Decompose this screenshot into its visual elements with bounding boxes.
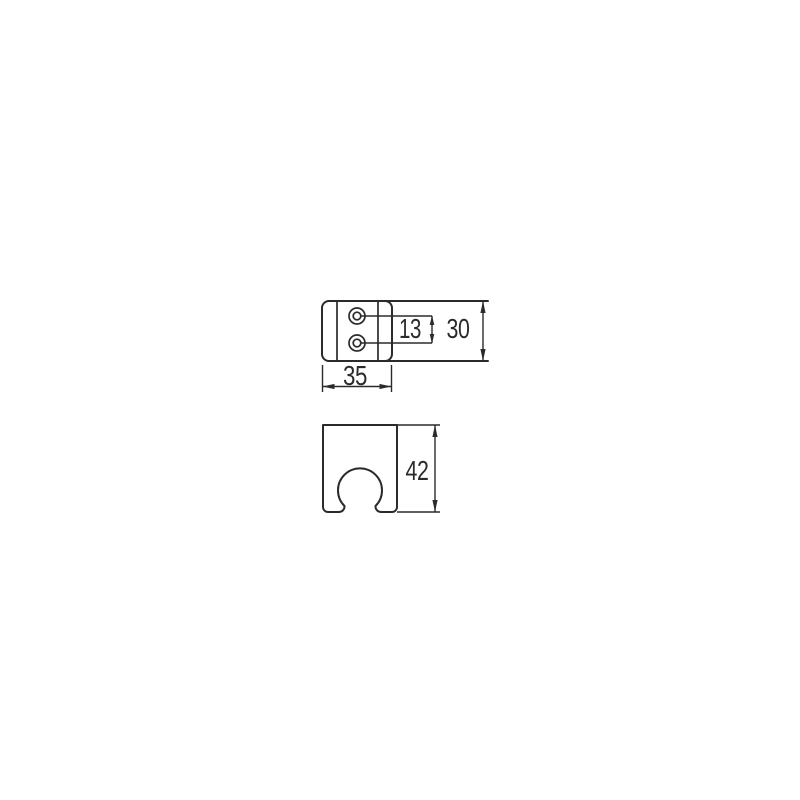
bracket-front-outline (323, 425, 397, 512)
dim-13-arrow-up (430, 316, 435, 326)
dim-13-arrow-down (430, 334, 435, 344)
dimension-hole-spacing: 13 (361, 313, 434, 344)
dim-42-arrow-down (432, 500, 437, 512)
screw-hole-top-inner (353, 312, 361, 320)
dim-42-label: 42 (406, 455, 429, 486)
drawing-page: 13 30 35 (0, 0, 800, 800)
dimension-front-height: 42 (397, 425, 440, 512)
dimension-body-width: 35 (323, 360, 392, 392)
dim-30-label: 30 (447, 313, 470, 344)
dim-30-arrow-down (480, 349, 485, 361)
dim-30-arrow-up (480, 301, 485, 313)
dim-42-arrow-up (432, 425, 437, 437)
technical-drawing-canvas: 13 30 35 (0, 0, 800, 800)
front-view: 42 (323, 425, 440, 512)
screw-hole-bottom-inner (353, 339, 361, 347)
dim-13-label: 13 (399, 313, 421, 344)
dim-35-label: 35 (343, 360, 367, 391)
dim-35-arrow-right (380, 384, 392, 389)
dimension-body-height: 30 (447, 301, 486, 361)
side-view: 13 30 35 (322, 301, 488, 392)
dim-35-arrow-left (323, 384, 335, 389)
